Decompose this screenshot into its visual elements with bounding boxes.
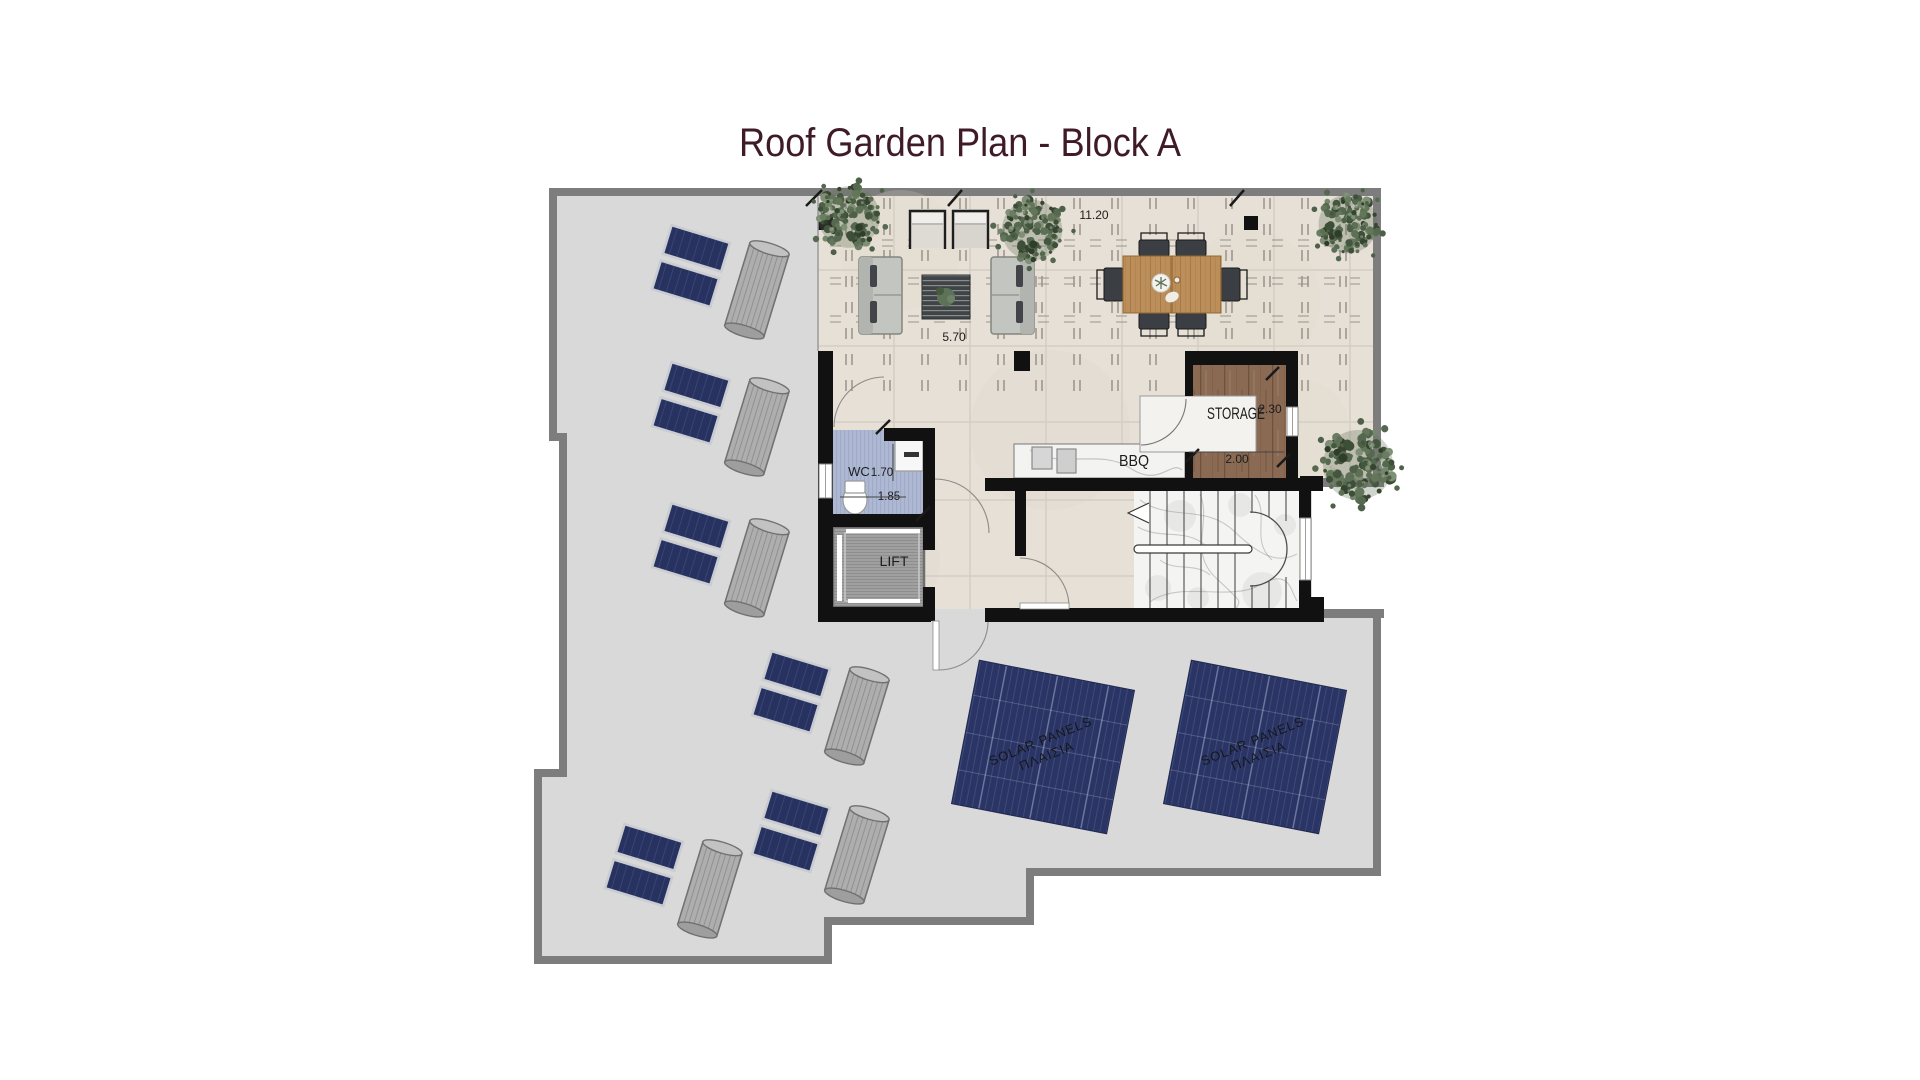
svg-text:BBQ: BBQ: [1119, 453, 1149, 470]
svg-text:Roof Garden Plan - Block A: Roof Garden Plan - Block A: [739, 121, 1181, 165]
svg-text:11.20: 11.20: [1079, 208, 1108, 222]
svg-text:1.70: 1.70: [871, 467, 893, 479]
svg-text:LIFT: LIFT: [880, 554, 909, 569]
svg-text:2.30: 2.30: [1258, 402, 1282, 416]
svg-text:STORAGE: STORAGE: [1207, 405, 1265, 423]
svg-text:2.00: 2.00: [1225, 452, 1249, 466]
svg-text:5.70: 5.70: [942, 330, 966, 344]
svg-text:WC: WC: [848, 464, 870, 479]
